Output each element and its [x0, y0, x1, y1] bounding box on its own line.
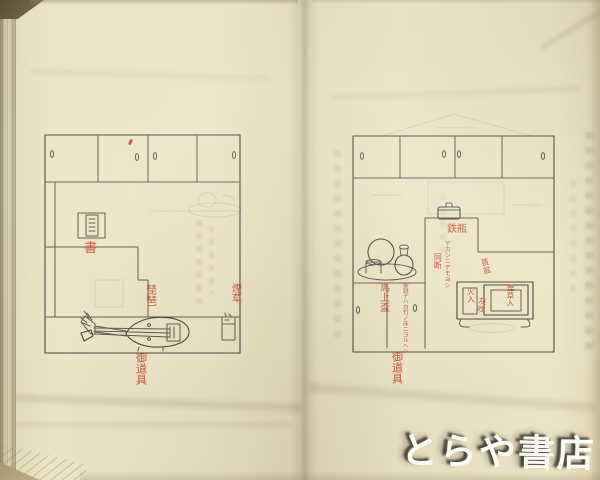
framed-book-sketch [78, 213, 105, 238]
bookstore-watermark: とらや書店 [400, 420, 596, 478]
right-diagram-caption: 御道具 [391, 351, 403, 384]
left-diagram-sketch [44, 134, 242, 356]
sake-tray-sketch [358, 239, 416, 280]
book-gutter [290, 0, 318, 480]
left-diagram-caption: 御道具 [135, 352, 147, 385]
label-kettle: 鉄瓶 [447, 225, 467, 236]
label-sake-note: 御銚子ハ白竹ノ床ニヨルヘシ [401, 282, 407, 354]
label-book: 書 [84, 242, 97, 256]
label-fire-cup: 火入 [466, 287, 474, 303]
book-fore-edge [0, 0, 16, 480]
label-tobacco: 煙草 [229, 283, 240, 303]
kettle-sketch [438, 203, 460, 219]
cupboard-row [50, 136, 235, 182]
room-frame [353, 136, 554, 352]
floor-ghost-square [95, 211, 240, 307]
book-scan-photo: 書 琵琶 煙草 御道具 [0, 0, 600, 480]
page-right-edge [586, 0, 600, 480]
label-sake-tray: 馬上盃 [377, 282, 388, 312]
tobacco-box-sketch [222, 313, 235, 340]
wall-ghost-rect [372, 182, 542, 214]
right-diagram-sketch [352, 135, 556, 355]
page-top-edge [312, 0, 600, 4]
label-tobacco-case: 煙草入 [506, 284, 514, 307]
page-top-edge [30, 0, 298, 5]
label-ditto-note: 同断 [433, 253, 441, 269]
label-biwa: 琵琶 [145, 284, 157, 306]
cupboard-row [360, 137, 544, 178]
label-kettle-note: ヤカンニテモヨシ [443, 240, 449, 288]
